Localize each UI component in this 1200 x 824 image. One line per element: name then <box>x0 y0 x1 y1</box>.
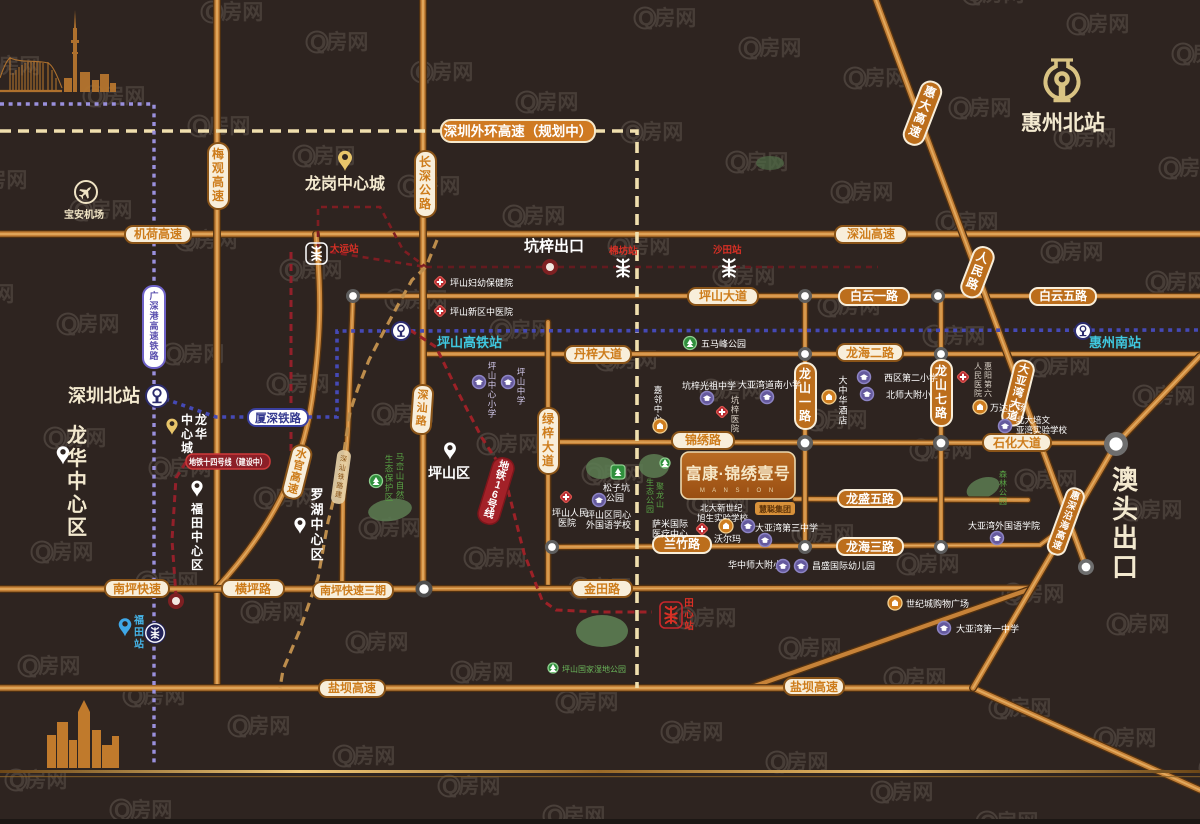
svg-text:Q房网: Q房网 <box>455 660 513 684</box>
svg-text:口: 口 <box>1112 552 1138 582</box>
svg-text:Q房网: Q房网 <box>927 324 985 348</box>
svg-text:山: 山 <box>656 499 664 509</box>
svg-text:Q房网: Q房网 <box>0 396 1 420</box>
svg-text:南坪快速三期: 南坪快速三期 <box>320 583 386 597</box>
svg-text:北师大附小: 北师大附小 <box>886 389 931 400</box>
svg-text:护: 护 <box>385 483 394 493</box>
svg-text:院: 院 <box>731 424 740 434</box>
svg-text:龙盛五路: 龙盛五路 <box>846 491 895 506</box>
svg-text:Q房网: Q房网 <box>1032 354 1090 378</box>
svg-text:大亚湾第三中学: 大亚湾第三中学 <box>755 522 818 533</box>
svg-text:中: 中 <box>181 412 193 427</box>
svg-text:深: 深 <box>419 168 431 183</box>
svg-text:Q房网: Q房网 <box>0 282 14 306</box>
svg-text:Q房网: Q房网 <box>520 90 578 114</box>
svg-text:机荷高速: 机荷高速 <box>134 226 182 241</box>
svg-text:医: 医 <box>974 380 982 389</box>
svg-text:路: 路 <box>935 405 948 420</box>
svg-text:五马峰公园: 五马峰公园 <box>701 339 746 349</box>
svg-text:白云一路: 白云一路 <box>850 288 899 303</box>
svg-text:店: 店 <box>838 415 847 426</box>
svg-text:速: 速 <box>212 188 224 203</box>
svg-text:高: 高 <box>212 174 224 189</box>
svg-text:Q房网: Q房网 <box>114 798 172 819</box>
svg-text:大亚湾道南小学: 大亚湾道南小学 <box>738 379 801 390</box>
svg-text:深: 深 <box>417 387 429 402</box>
svg-text:聚: 聚 <box>656 482 664 491</box>
svg-text:Q房网: Q房网 <box>901 552 959 576</box>
svg-text:学: 学 <box>517 396 526 406</box>
svg-text:深圳外环高速（规划中）: 深圳外环高速（规划中） <box>444 123 593 139</box>
svg-text:自: 自 <box>396 481 405 491</box>
svg-text:Q房网: Q房网 <box>337 744 395 768</box>
svg-text:园: 园 <box>999 497 1007 506</box>
svg-text:福: 福 <box>190 501 203 516</box>
svg-text:邻: 邻 <box>654 395 663 405</box>
svg-text:中: 中 <box>838 385 847 396</box>
svg-text:富康·锦绣壹号: 富康·锦绣壹号 <box>686 464 791 483</box>
svg-text:广: 广 <box>149 290 158 301</box>
svg-text:路: 路 <box>419 196 432 211</box>
svg-text:世纪城购物广场: 世纪城购物广场 <box>906 598 969 609</box>
svg-text:长: 长 <box>419 154 432 169</box>
svg-text:医疗中心: 医疗中心 <box>652 528 688 539</box>
svg-text:中: 中 <box>310 517 323 532</box>
svg-text:龙: 龙 <box>67 423 87 447</box>
svg-text:区: 区 <box>67 517 87 539</box>
svg-text:Q房网: Q房网 <box>665 720 723 744</box>
svg-text:坪: 坪 <box>517 367 526 377</box>
svg-text:龙: 龙 <box>195 412 207 427</box>
svg-text:民: 民 <box>974 371 982 380</box>
svg-text:大运站: 大运站 <box>330 243 359 255</box>
svg-text:Q房网: Q房网 <box>875 780 933 804</box>
svg-text:路: 路 <box>799 408 812 423</box>
svg-text:M A N S I O N: M A N S I O N <box>700 488 776 494</box>
svg-text:态: 态 <box>385 464 394 474</box>
svg-text:一: 一 <box>799 395 811 409</box>
svg-text:石化大道: 石化大道 <box>992 435 1041 450</box>
svg-text:第: 第 <box>984 379 992 389</box>
svg-text:Q房网: Q房网 <box>284 258 342 282</box>
svg-text:林: 林 <box>999 478 1007 488</box>
svg-text:龙岗中心城: 龙岗中心城 <box>304 174 385 193</box>
svg-text:Q房网: Q房网 <box>245 600 303 624</box>
svg-text:山: 山 <box>517 377 526 387</box>
svg-text:然: 然 <box>396 490 405 500</box>
svg-text:六: 六 <box>984 388 992 398</box>
svg-text:小: 小 <box>488 399 497 409</box>
svg-text:速: 速 <box>149 330 158 341</box>
svg-text:园: 园 <box>646 505 654 514</box>
svg-text:坪山新区中医院: 坪山新区中医院 <box>450 306 513 317</box>
svg-text:道: 道 <box>542 453 554 468</box>
svg-text:观: 观 <box>212 161 224 175</box>
svg-text:沙田站: 沙田站 <box>713 244 742 256</box>
svg-text:Q房网: Q房网 <box>22 654 80 678</box>
svg-text:中: 中 <box>191 529 203 544</box>
svg-text:公: 公 <box>646 496 654 505</box>
svg-text:华: 华 <box>838 395 847 406</box>
svg-text:盐坝高速: 盐坝高速 <box>790 679 838 694</box>
svg-text:坪山高铁站: 坪山高铁站 <box>437 335 502 350</box>
svg-text:坪山国家湿地公园: 坪山国家湿地公园 <box>562 664 626 674</box>
svg-text:Q房网: Q房网 <box>1071 12 1129 36</box>
svg-text:Q房网: Q房网 <box>192 114 250 138</box>
svg-text:田: 田 <box>191 516 203 530</box>
svg-text:金田路: 金田路 <box>583 581 621 596</box>
svg-text:坪: 坪 <box>488 361 497 371</box>
svg-text:深圳北站: 深圳北站 <box>68 385 140 406</box>
svg-text:区: 区 <box>385 492 394 502</box>
svg-text:城: 城 <box>181 440 193 455</box>
svg-text:盐坝高速: 盐坝高速 <box>328 680 376 695</box>
svg-text:大亚湾第一中学: 大亚湾第一中学 <box>956 623 1019 634</box>
svg-text:坪山区: 坪山区 <box>428 465 470 481</box>
svg-text:亚湾实验学校: 亚湾实验学校 <box>1016 425 1068 435</box>
svg-text:大: 大 <box>542 439 554 454</box>
svg-text:森: 森 <box>999 469 1007 479</box>
svg-text:铁: 铁 <box>149 340 158 351</box>
svg-text:松子坑: 松子坑 <box>603 482 630 493</box>
svg-text:心: 心 <box>181 427 193 441</box>
svg-text:坑: 坑 <box>731 395 740 405</box>
svg-text:中: 中 <box>488 380 497 390</box>
svg-text:保: 保 <box>385 473 394 483</box>
svg-text:Q房网: Q房网 <box>468 546 526 570</box>
svg-text:深: 深 <box>149 300 158 311</box>
svg-text:万达广场: 万达广场 <box>990 402 1026 413</box>
svg-text:Q房网: Q房网 <box>1111 612 1169 636</box>
svg-text:Q房网: Q房网 <box>310 30 368 54</box>
svg-text:大: 大 <box>838 375 847 386</box>
svg-text:站: 站 <box>134 638 144 651</box>
svg-text:西区第二小学: 西区第二小学 <box>884 372 938 383</box>
svg-text:区: 区 <box>310 547 323 562</box>
svg-text:坑梓出口: 坑梓出口 <box>524 237 584 255</box>
svg-text:医院: 医院 <box>558 517 576 528</box>
svg-text:白云五路: 白云五路 <box>1039 288 1088 303</box>
svg-text:南坪快速: 南坪快速 <box>113 581 161 596</box>
svg-text:Q房网: Q房网 <box>61 312 119 336</box>
svg-text:公园: 公园 <box>606 493 624 503</box>
svg-text:华: 华 <box>67 446 87 470</box>
svg-text:生: 生 <box>385 454 394 464</box>
svg-text:横坪路: 横坪路 <box>235 581 272 596</box>
svg-text:嘉: 嘉 <box>654 385 663 395</box>
svg-text:Q房网: Q房网 <box>638 6 696 30</box>
svg-text:院: 院 <box>974 388 982 398</box>
svg-text:龙海三路: 龙海三路 <box>846 539 895 554</box>
svg-text:公: 公 <box>419 183 431 197</box>
svg-text:昌盛国际幼儿园: 昌盛国际幼儿园 <box>812 560 875 571</box>
svg-text:生: 生 <box>646 477 654 487</box>
svg-text:厦深铁路: 厦深铁路 <box>255 411 301 425</box>
svg-text:心: 心 <box>310 532 323 547</box>
svg-text:七: 七 <box>935 392 947 406</box>
svg-text:Q房网: Q房网 <box>953 96 1011 120</box>
svg-text:华中师大附小: 华中师大附小 <box>728 559 782 570</box>
svg-text:北大新世纪: 北大新世纪 <box>700 503 743 513</box>
svg-text:Q房网: Q房网 <box>442 774 500 798</box>
svg-text:坪山大道: 坪山大道 <box>699 288 747 303</box>
svg-text:路: 路 <box>149 350 159 361</box>
svg-text:Q房网: Q房网 <box>35 540 93 564</box>
svg-text:心: 心 <box>488 390 497 400</box>
svg-text:Q房网: Q房网 <box>350 630 408 654</box>
svg-text:福: 福 <box>133 614 144 627</box>
svg-text:龙: 龙 <box>656 490 664 500</box>
svg-text:梓: 梓 <box>731 405 740 415</box>
svg-text:态: 态 <box>646 486 654 496</box>
svg-text:梅: 梅 <box>212 146 224 161</box>
svg-text:心: 心 <box>67 493 87 516</box>
svg-text:站: 站 <box>684 620 694 632</box>
svg-text:Q房网: Q房网 <box>507 204 565 228</box>
svg-text:坪山妇幼保健院: 坪山妇幼保健院 <box>450 277 513 288</box>
svg-text:高: 高 <box>149 320 158 331</box>
svg-text:路: 路 <box>415 413 428 428</box>
svg-text:Q房网: Q房网 <box>1150 270 1200 294</box>
svg-text:惠州北站: 惠州北站 <box>1021 111 1105 135</box>
svg-text:北大培文: 北大培文 <box>1016 415 1051 425</box>
svg-text:人: 人 <box>974 362 982 371</box>
svg-text:湖: 湖 <box>310 502 323 517</box>
svg-text:沃尔玛: 沃尔玛 <box>714 533 741 544</box>
svg-text:龙海二路: 龙海二路 <box>846 345 895 360</box>
svg-text:坪山区同心: 坪山区同心 <box>586 510 631 520</box>
svg-text:澳: 澳 <box>1112 465 1139 495</box>
svg-text:华: 华 <box>195 426 207 441</box>
svg-text:山: 山 <box>396 471 405 481</box>
svg-text:酒: 酒 <box>838 406 847 416</box>
svg-text:中: 中 <box>654 404 663 414</box>
svg-text:中: 中 <box>517 386 526 396</box>
svg-text:阳: 阳 <box>984 371 992 380</box>
svg-text:萨米国际: 萨米国际 <box>652 518 688 529</box>
svg-text:学: 学 <box>488 409 497 419</box>
svg-text:马: 马 <box>396 452 405 462</box>
svg-text:心: 心 <box>684 610 694 621</box>
svg-text:龙: 龙 <box>799 366 811 381</box>
svg-text:峦: 峦 <box>396 462 405 472</box>
svg-text:区: 区 <box>191 558 203 572</box>
svg-text:坑梓光祖中学: 坑梓光祖中学 <box>682 380 736 391</box>
svg-text:Q房网: Q房网 <box>835 180 893 204</box>
svg-text:慧聪集团: 慧聪集团 <box>759 504 791 514</box>
svg-text:Q房网: Q房网 <box>232 714 290 738</box>
svg-text:锦绣路: 锦绣路 <box>685 432 722 447</box>
svg-text:丹梓大道: 丹梓大道 <box>574 346 622 361</box>
svg-text:宝安机场: 宝安机场 <box>64 208 104 221</box>
svg-text:Q房网: Q房网 <box>743 36 801 60</box>
svg-text:惠州南站: 惠州南站 <box>1089 335 1141 350</box>
svg-text:地铁十四号线（建设中）: 地铁十四号线（建设中） <box>189 457 267 467</box>
svg-text:头: 头 <box>1112 494 1138 524</box>
svg-text:梓: 梓 <box>542 425 554 440</box>
svg-text:大亚湾外国语学院: 大亚湾外国语学院 <box>968 520 1040 531</box>
svg-text:田: 田 <box>134 627 144 639</box>
svg-text:棉坊站: 棉坊站 <box>609 245 638 257</box>
svg-text:医: 医 <box>731 414 740 424</box>
svg-text:Q房网: Q房网 <box>271 372 329 396</box>
svg-text:Q房网: Q房网 <box>0 168 27 192</box>
svg-text:汕: 汕 <box>416 400 428 415</box>
svg-text:港: 港 <box>149 310 159 321</box>
svg-text:中: 中 <box>67 469 87 493</box>
svg-text:田: 田 <box>684 598 694 609</box>
svg-text:惠: 惠 <box>984 361 992 371</box>
svg-text:深汕高速: 深汕高速 <box>847 226 895 241</box>
svg-text:Q房网: Q房网 <box>1045 240 1103 264</box>
svg-text:山: 山 <box>488 371 497 381</box>
svg-text:公: 公 <box>999 488 1007 497</box>
svg-text:Q房网: Q房网 <box>848 66 906 90</box>
svg-text:外国语学校: 外国语学校 <box>586 519 631 530</box>
svg-text:出: 出 <box>1112 523 1138 553</box>
svg-text:心: 心 <box>191 544 203 558</box>
svg-text:Q房网: Q房网 <box>560 690 618 714</box>
svg-text:坪山人民: 坪山人民 <box>552 508 588 518</box>
svg-text:绿: 绿 <box>542 411 555 426</box>
svg-text:罗: 罗 <box>310 487 323 502</box>
